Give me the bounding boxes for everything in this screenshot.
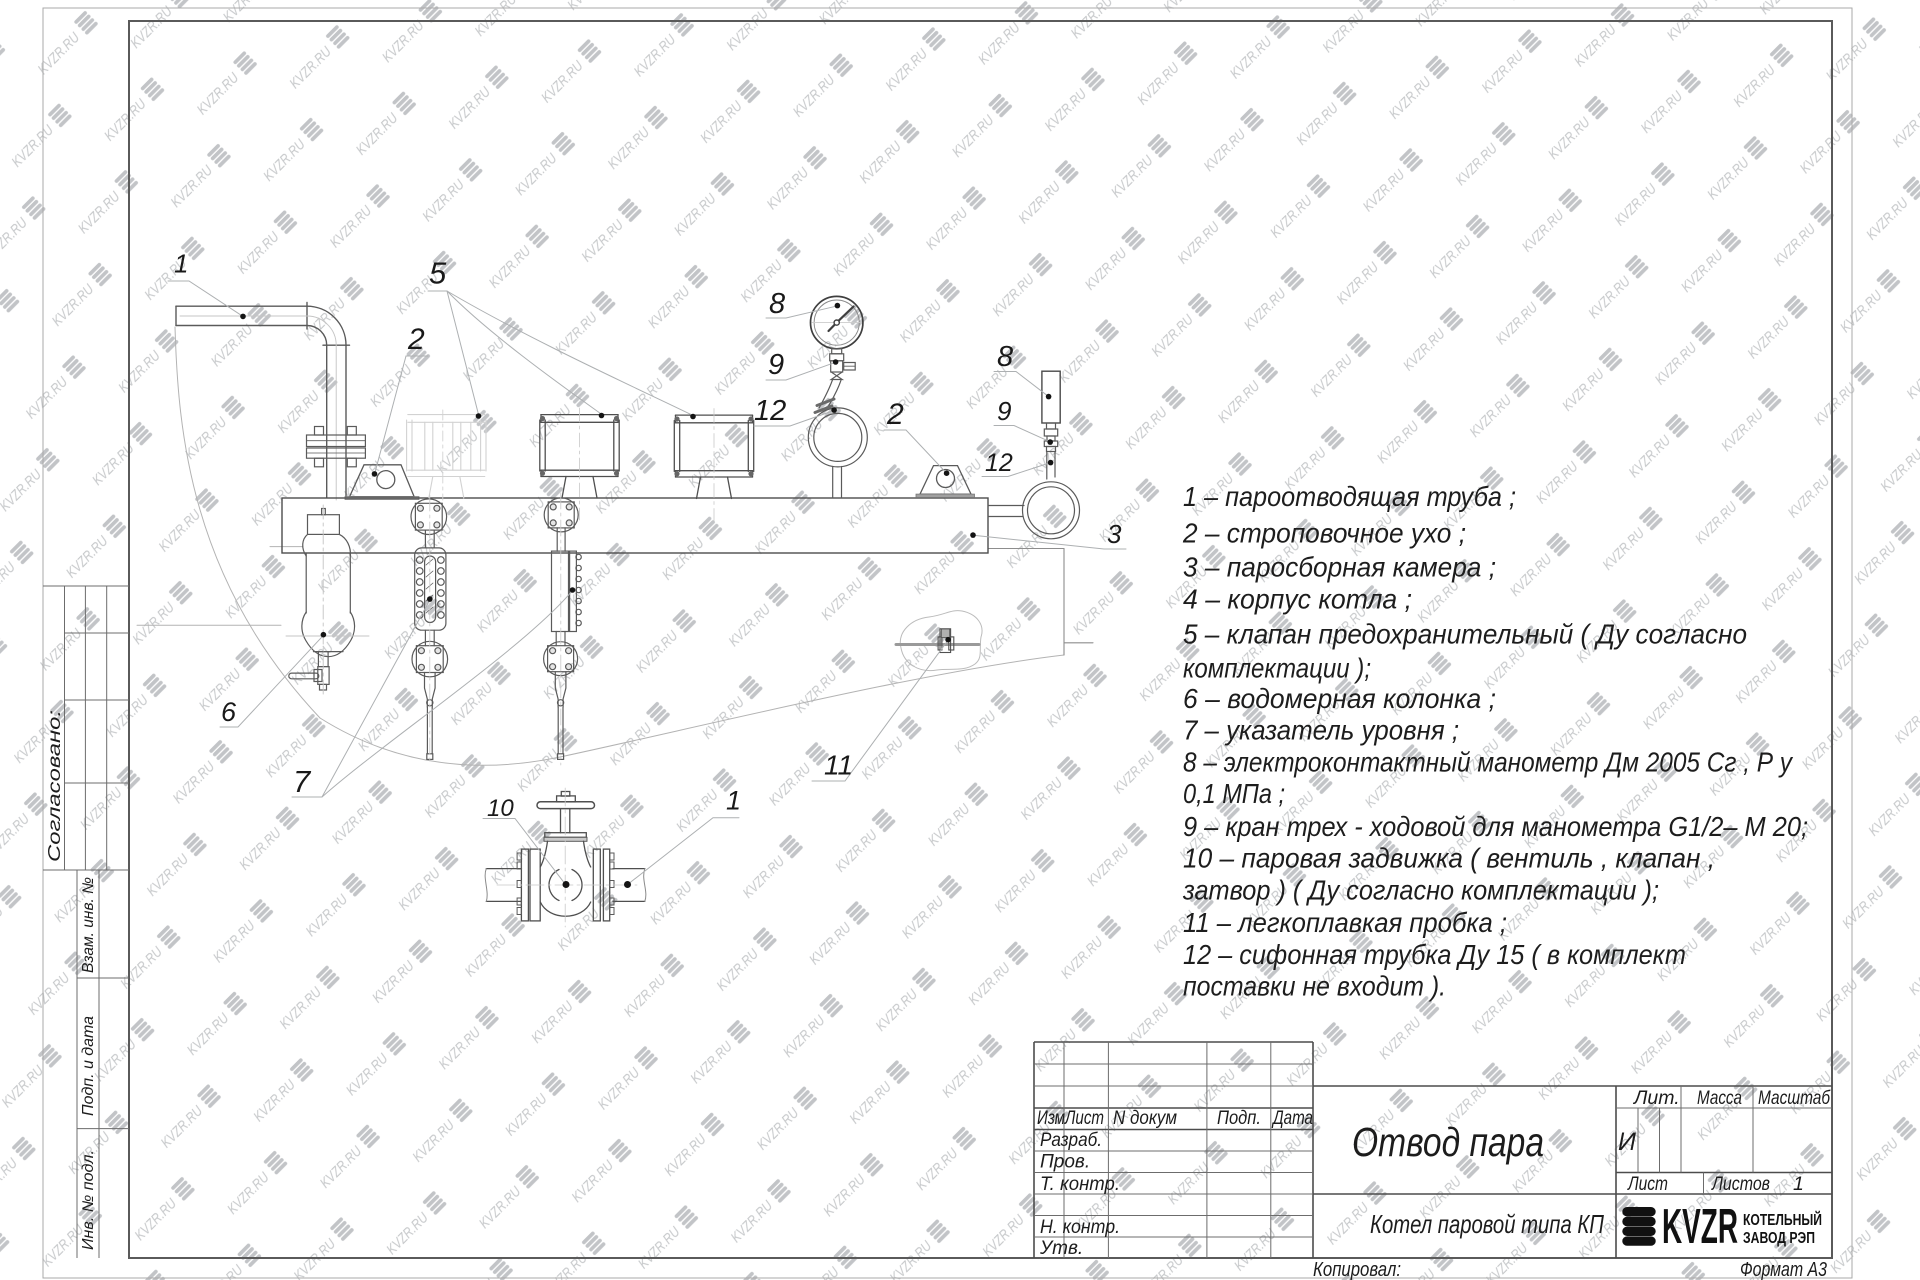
svg-text:KVZR: KVZR: [1662, 1200, 1738, 1254]
svg-text:10 – паровая задвижка ( вент: 10 – паровая задвижка ( вентиль , клапан…: [1183, 843, 1715, 874]
svg-text:3 – паросборная камера ;: 3 – паросборная камера ;: [1183, 552, 1496, 583]
svg-text:ИзмЛист: ИзмЛист: [1037, 1108, 1104, 1129]
svg-text:7: 7: [293, 764, 312, 799]
svg-text:8 – электроконтактный манометр: 8 – электроконтактный манометр Дм 2005 С…: [1183, 747, 1794, 778]
svg-text:поставки не входит ).: поставки не входит ).: [1183, 971, 1446, 1002]
svg-text:Подп. и дата: Подп. и дата: [80, 1016, 97, 1116]
svg-text:Отвод пара: Отвод пара: [1352, 1119, 1544, 1165]
svg-text:2: 2: [407, 323, 425, 356]
svg-text:КОТЕЛЬНЫЙ: КОТЕЛЬНЫЙ: [1743, 1210, 1822, 1229]
svg-text:5: 5: [429, 256, 447, 291]
svg-text:Утв.: Утв.: [1039, 1238, 1083, 1259]
svg-text:комплектации );: комплектации );: [1183, 653, 1371, 684]
svg-text:6 – водомерная колонка ;: 6 – водомерная колонка ;: [1183, 683, 1496, 714]
svg-text:5 – клапан предохранительный: 5 – клапан предохранительный ( Ду соглас…: [1183, 619, 1747, 650]
svg-text:N докум: N докум: [1113, 1108, 1177, 1129]
svg-text:8: 8: [769, 288, 785, 320]
svg-text:затвор ) ( Ду согласно комплек: затвор ) ( Ду согласно комплектации );: [1182, 875, 1659, 906]
svg-text:11: 11: [824, 750, 853, 781]
svg-text:11 – легкоплавкая пробка ;: 11 – легкоплавкая пробка ;: [1183, 907, 1507, 938]
svg-text:Лист: Лист: [1626, 1173, 1668, 1195]
svg-text:9 – кран трех - ходовой для м: 9 – кран трех - ходовой для манометра G1…: [1183, 811, 1808, 842]
svg-text:2 – строповочное ухо ;: 2 – строповочное ухо ;: [1182, 518, 1466, 549]
svg-text:Масса: Масса: [1697, 1087, 1742, 1109]
svg-text:3: 3: [1107, 519, 1122, 549]
svg-text:12 – сифонная трубка Ду 15 (: 12 – сифонная трубка Ду 15 ( в комплект: [1183, 939, 1686, 970]
svg-text:Инв. № подл.: Инв. № подл.: [80, 1150, 97, 1250]
svg-text:Разраб.: Разраб.: [1040, 1130, 1102, 1151]
svg-text:Н. контр.: Н. контр.: [1040, 1217, 1120, 1238]
svg-text:9: 9: [997, 396, 1011, 426]
svg-text:1: 1: [726, 786, 741, 816]
svg-text:0,1 МПа ;: 0,1 МПа ;: [1183, 778, 1285, 809]
svg-text:1: 1: [174, 249, 188, 279]
svg-text:Масштаб: Масштаб: [1758, 1087, 1831, 1109]
svg-text:Листов: Листов: [1710, 1173, 1770, 1195]
svg-text:1 – пароотводящая труба ;: 1 – пароотводящая труба ;: [1183, 481, 1516, 512]
svg-text:9: 9: [768, 349, 784, 381]
svg-text:Дата: Дата: [1271, 1108, 1313, 1129]
svg-text:Копировал:: Копировал:: [1313, 1259, 1401, 1280]
svg-text:2: 2: [886, 398, 904, 431]
svg-text:7 – указатель уровня ;: 7 – указатель уровня ;: [1183, 715, 1459, 746]
svg-text:1: 1: [1793, 1173, 1804, 1195]
svg-text:Формат А3: Формат А3: [1740, 1259, 1827, 1280]
svg-text:Согласовано:: Согласовано:: [44, 710, 64, 862]
svg-text:ЗАВОД РЭП: ЗАВОД РЭП: [1743, 1230, 1815, 1247]
svg-text:Подп.: Подп.: [1217, 1108, 1261, 1129]
svg-text:И: И: [1618, 1128, 1636, 1156]
svg-text:Взам. инв. №: Взам. инв. №: [80, 877, 97, 973]
svg-text:6: 6: [221, 697, 237, 727]
svg-text:Т. контр.: Т. контр.: [1040, 1174, 1120, 1195]
svg-text:12: 12: [754, 395, 786, 427]
svg-text:Пров.: Пров.: [1040, 1152, 1090, 1173]
svg-text:8: 8: [997, 341, 1013, 373]
svg-text:10: 10: [487, 795, 514, 822]
svg-text:Котел паровой типа КП: Котел паровой типа КП: [1370, 1209, 1604, 1239]
svg-text:4 – корпус котла ;: 4 – корпус котла ;: [1183, 584, 1412, 615]
svg-text:Лит.: Лит.: [1632, 1087, 1680, 1109]
svg-text:12: 12: [985, 449, 1013, 477]
